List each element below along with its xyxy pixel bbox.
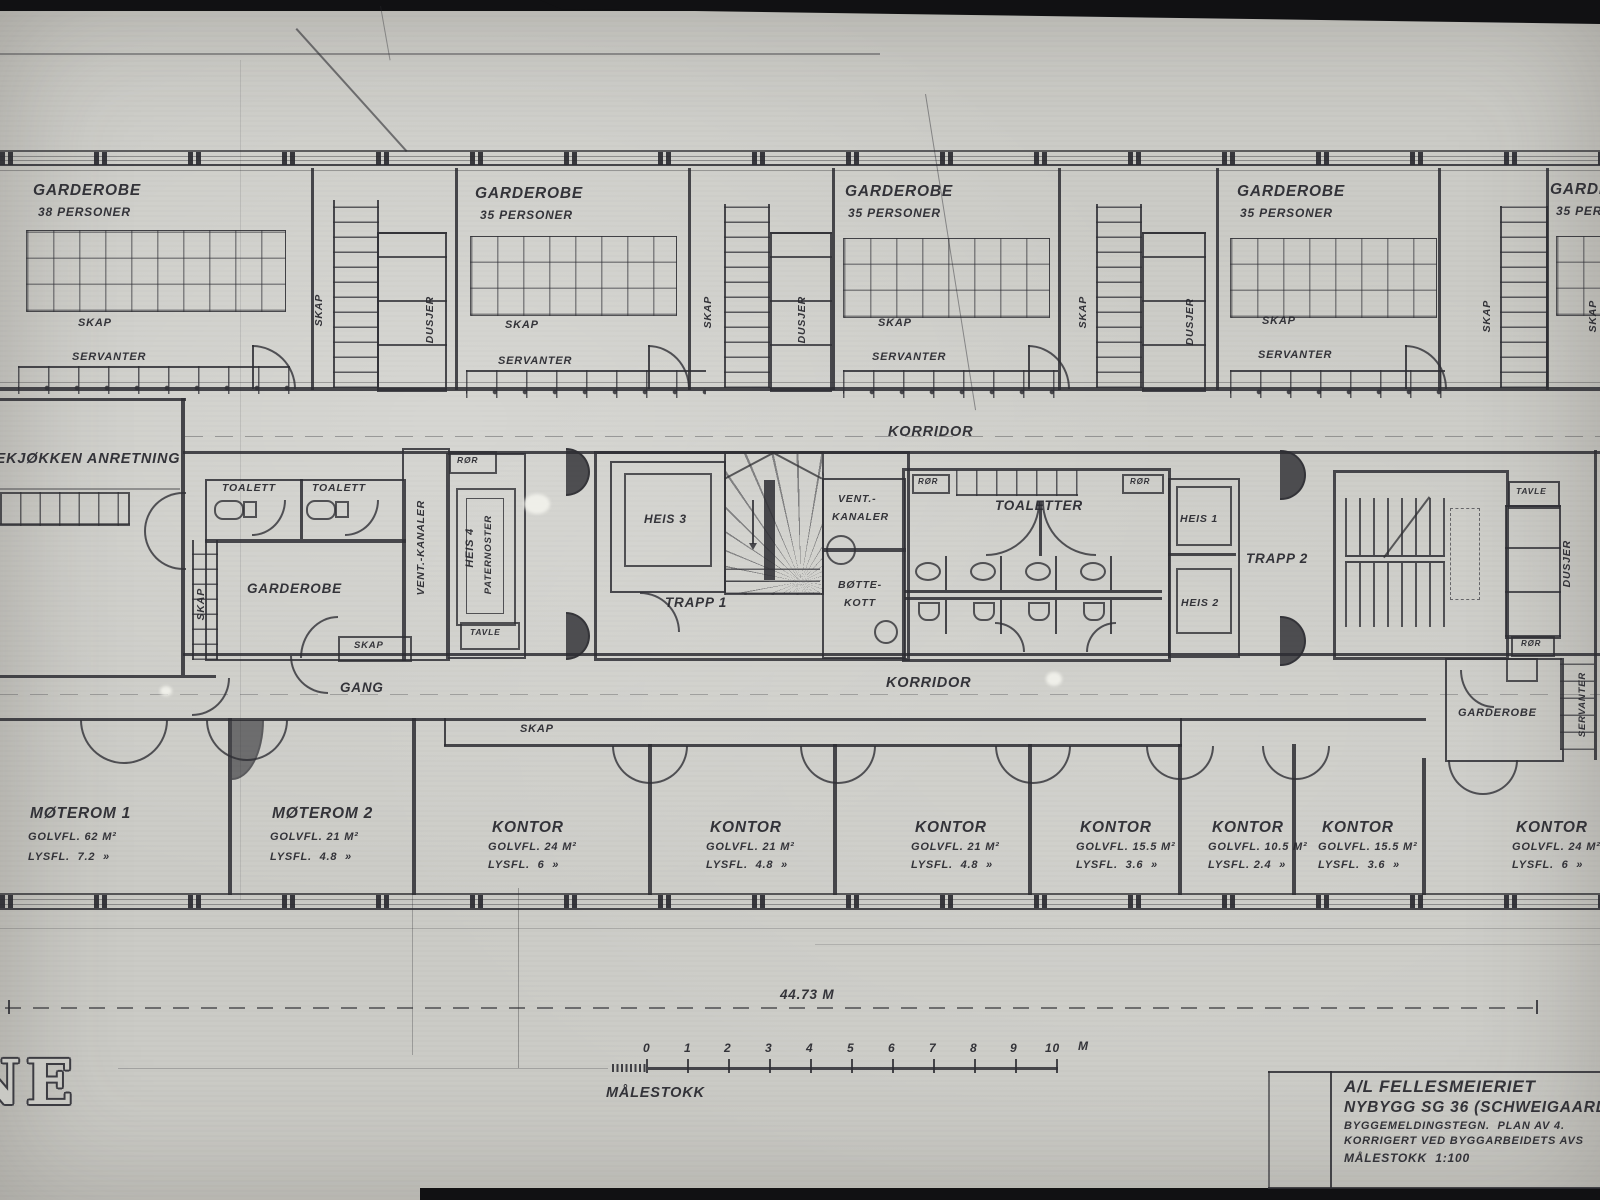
room-light-area: LYSFL. 2.4 »: [1208, 860, 1286, 871]
skap-label: SKAP: [196, 588, 207, 620]
title-block-border-left: [1268, 1071, 1270, 1189]
locker-grid: [1230, 238, 1437, 318]
scan-line: [815, 944, 1600, 945]
room-area: GOLVFL. 10.5 M²: [1208, 842, 1307, 853]
room-capacity: 35 PERSONER: [848, 207, 941, 219]
scale-tick-label: 4: [806, 1042, 813, 1054]
fold-line: [296, 28, 408, 152]
locker-grid: [470, 236, 677, 316]
room-area: GOLVFL. 24 M²: [1512, 842, 1600, 853]
door-leaf-dark: [566, 448, 590, 496]
door-arc: [1028, 345, 1070, 389]
heis-label: HEIS 4: [465, 528, 476, 568]
skap-band-end: [1180, 718, 1182, 746]
room-label: GARDEROBE: [845, 184, 953, 200]
arrow-down-icon: [749, 543, 757, 550]
scale-bar-ticks: [646, 1059, 1062, 1073]
shelf-ladder: [333, 200, 379, 388]
title-block-border-top: [1268, 1071, 1600, 1073]
door-leaf-dark: [1280, 450, 1306, 500]
stair-risers: [1345, 563, 1445, 627]
corner-lettering: NE: [0, 1046, 78, 1119]
tavle-label: TAVLE: [1516, 487, 1547, 496]
vent-label: KANALER: [832, 512, 889, 523]
scale-extension-line: [118, 1068, 608, 1069]
door-arc: [1405, 345, 1447, 389]
wc-fixture: [970, 562, 996, 581]
partition-wall: [688, 168, 691, 390]
scan-line: [0, 928, 1600, 929]
scale-tick-label: 7: [929, 1042, 936, 1054]
title-line: A/L FELLESMEIERIET: [1344, 1078, 1536, 1095]
servanter-label: SERVANTER: [872, 352, 946, 363]
wc-fixture: [1025, 562, 1051, 581]
skap-box: [1506, 658, 1538, 682]
floor-plan-scan: GARDEROBE 38 PERSONER SKAP SERVANTER DUS…: [0, 0, 1600, 1200]
skap-label: SKAP: [1262, 316, 1296, 327]
stall-partition: [1000, 556, 1002, 590]
wc-fixture: [915, 562, 941, 581]
scale-tick-label: 5: [847, 1042, 854, 1054]
room-capacity: 35 PERSONER: [480, 209, 573, 221]
door-arc: [252, 345, 296, 389]
door-arc: [800, 746, 876, 784]
washbasins: [18, 366, 290, 394]
room-label: BØTTE-: [838, 580, 882, 591]
wc-fixture: [973, 602, 995, 621]
room-light-area: LYSFL. 6 »: [1512, 860, 1583, 871]
scale-tick-label: 9: [1010, 1042, 1017, 1054]
door-leaf: [1039, 502, 1042, 556]
room-light-area: LYSFL. 3.6 »: [1076, 860, 1158, 871]
skap-band-end: [444, 718, 446, 746]
room-label: GARDEROBE: [247, 582, 342, 596]
skap-label: SKAP: [520, 724, 554, 735]
scan-spot: [160, 686, 172, 696]
room-area: GOLVFL. 21 M²: [911, 842, 1000, 853]
shelf-ladder: [1096, 204, 1142, 388]
title-block-divider: [1330, 1071, 1332, 1189]
door-arc: [612, 746, 688, 784]
skap-label: SKAP: [78, 318, 112, 329]
room-label: GARDEROBE: [1458, 708, 1537, 719]
room-area: GOLVFL. 21 M²: [270, 832, 359, 843]
room-label: GARDEROBE: [475, 186, 583, 202]
partition-wall: [832, 168, 835, 390]
skap-label: SKAP: [1482, 300, 1493, 332]
room-label: GARDEROBE: [1550, 182, 1600, 198]
stall-partition: [945, 600, 947, 634]
band-guide-line: [0, 170, 1600, 171]
scale-tick-label: 8: [970, 1042, 977, 1054]
stair-landing-dashed: [1450, 508, 1480, 600]
kitchen-counter: [0, 492, 130, 526]
skap-label: SKAP: [703, 296, 714, 328]
scan-edge-top-right: [540, 0, 1600, 24]
korridor-label: KORRIDOR: [888, 425, 973, 440]
room-area: GOLVFL. 15.5 M²: [1076, 842, 1175, 853]
partition-wall: [412, 718, 416, 895]
heis-label: HEIS 3: [644, 513, 687, 525]
shower-stalls: [377, 232, 447, 392]
wall: [0, 398, 186, 401]
scale-tick-label: 1: [684, 1042, 691, 1054]
room-label: KONTOR: [1516, 820, 1588, 836]
title-line: BYGGEMELDINGSTEGN. PLAN AV 4.: [1344, 1121, 1565, 1132]
shower-stalls: [1505, 505, 1561, 639]
shower-stalls: [1142, 232, 1206, 392]
door-arc: [1448, 760, 1518, 795]
dusjer-label: DUSJER: [1185, 298, 1196, 345]
partition-wall: [1058, 168, 1061, 390]
wc-fixture: [214, 500, 244, 520]
stall-partition: [1055, 600, 1057, 634]
wc-fixture: [1083, 602, 1105, 621]
room-light-area: LYSFL. 4.8 »: [911, 860, 993, 871]
skap-label: SKAP: [1078, 296, 1089, 328]
ror-label: RØR: [1130, 478, 1150, 486]
arrow-stem: [752, 500, 754, 544]
servanter-label: SERVANTER: [498, 356, 572, 367]
corridor-wall: [183, 653, 1600, 656]
sink-circle: [874, 620, 898, 644]
ror-label: RØR: [457, 456, 478, 465]
wc-fixture: [1028, 602, 1050, 621]
wc-fixture: [306, 500, 336, 520]
door-leaf-dark: [232, 720, 264, 780]
skap-label: SKAP: [354, 641, 384, 651]
shelf-ladder: [724, 204, 770, 388]
scale-tick-label: 2: [724, 1042, 731, 1054]
stair-risers: [1345, 498, 1445, 555]
partition-wall: [300, 479, 303, 539]
urinal-row: [956, 470, 1078, 496]
door-arc: [648, 345, 690, 389]
servanter-label: SERVANTER: [1258, 350, 1332, 361]
room-label: KONTOR: [915, 820, 987, 836]
door-leaf: [1405, 345, 1407, 389]
room-light-area: LYSFL. 3.6 »: [1318, 860, 1400, 871]
heis-label: PATERNOSTER: [484, 515, 494, 594]
door-arc: [144, 492, 186, 570]
room-area: GOLVFL. 24 M²: [488, 842, 577, 853]
gang-label: GANG: [340, 681, 384, 695]
door-arc: [995, 746, 1071, 784]
korridor-label: KORRIDOR: [886, 676, 971, 691]
trapp-label: TRAPP 2: [1246, 552, 1308, 566]
wc-fixture: [918, 602, 940, 621]
vent-label: VENT.-: [838, 494, 876, 505]
room-area: GOLVFL. 62 M²: [28, 832, 117, 843]
scan-spot: [1046, 672, 1062, 686]
scan-edge-bottom: [420, 1188, 1600, 1200]
corridor-centerline: [185, 436, 1600, 437]
door-leaf-dark: [1280, 616, 1306, 666]
exterior-wall-top-base: [0, 164, 1600, 166]
locker-grid: [26, 230, 286, 312]
stall-wall: [905, 590, 1162, 593]
title-line: MÅLESTOKK 1:100: [1344, 1152, 1470, 1164]
room-label: MØTEROM 2: [272, 806, 373, 822]
skap-band-top: [444, 718, 1182, 721]
room-light-area: LYSFL. 4.8 »: [270, 852, 352, 863]
scale-tick-label: 6: [888, 1042, 895, 1054]
scale-unit-label: M: [1078, 1040, 1089, 1052]
room-label: KONTOR: [710, 820, 782, 836]
vent-kanaler-label: VENT.-KANALER: [416, 500, 427, 595]
scale-tick-label: 10: [1045, 1042, 1060, 1054]
stall-wall: [905, 597, 1162, 600]
room-light-area: LYSFL. 7.2 »: [28, 852, 110, 863]
skap-label: SKAP: [314, 294, 325, 326]
servanter-label: SERVANTER: [72, 352, 146, 363]
crease-line: [412, 895, 413, 1055]
scale-tick-label: 3: [765, 1042, 772, 1054]
room-label: KOTT: [844, 598, 876, 609]
partition-wall: [455, 168, 458, 390]
room-label: TOALETT: [312, 483, 366, 494]
door-leaf: [1028, 345, 1030, 389]
door-arc: [192, 678, 230, 716]
partition-wall: [1216, 168, 1219, 390]
door-arc: [80, 720, 168, 764]
dimension-line: [5, 1007, 1540, 1009]
room-label: TOALETT: [222, 483, 276, 494]
room-label: KONTOR: [492, 820, 564, 836]
locker-grid: [843, 238, 1050, 318]
wall: [0, 675, 216, 678]
room-label: TEKJØKKEN ANRETNING: [0, 452, 180, 467]
room-label: KONTOR: [1322, 820, 1394, 836]
scale-bar-label: MÅLESTOKK: [606, 1086, 705, 1101]
dusjer-label: DUSJER: [425, 296, 436, 343]
stall-partition: [1110, 556, 1112, 590]
wc-fixture: [1080, 562, 1106, 581]
room-label: KONTOR: [1080, 820, 1152, 836]
room-label: GARDEROBE: [33, 183, 141, 199]
crease-line: [518, 888, 519, 1068]
exterior-wall-bottom-columns: [0, 895, 1600, 908]
heis-label: HEIS 2: [1181, 598, 1219, 609]
stair-landing-line: [1345, 555, 1445, 557]
scale-tick-label: 0: [643, 1042, 650, 1054]
line: [0, 488, 180, 490]
room-area: GOLVFL. 21 M²: [706, 842, 795, 853]
partition-wall: [1438, 168, 1441, 390]
heis-label: HEIS 1: [1180, 514, 1218, 525]
room-capacity: 35 PERSONER: [1240, 207, 1333, 219]
partition-wall: [1546, 168, 1549, 390]
skap-label: SKAP: [505, 320, 539, 331]
room-light-area: LYSFL. 6 »: [488, 860, 559, 871]
dusjer-label: DUSJER: [1562, 540, 1573, 587]
washbasins: [843, 370, 1058, 398]
partition-wall: [311, 168, 314, 390]
door-leaf: [648, 345, 650, 389]
room-label: KONTOR: [1212, 820, 1284, 836]
stair-treads: [726, 560, 820, 594]
room-capacity: 35 PERSONER: [1556, 205, 1600, 217]
door-arc: [290, 656, 328, 694]
scale-bar-hatch: [612, 1064, 646, 1072]
ror-label: RØR: [918, 478, 938, 486]
skap-label: SKAP: [1588, 300, 1599, 332]
dimension-tick: [8, 1000, 10, 1014]
room-label: MØTEROM 1: [30, 806, 131, 822]
skap-label: SKAP: [878, 318, 912, 329]
tavle-label: TAVLE: [470, 628, 501, 637]
trapp-label: TRAPP 1: [665, 596, 727, 610]
room-capacity: 38 PERSONER: [38, 206, 131, 218]
corridor-wall: [1180, 718, 1426, 721]
wall: [1168, 553, 1236, 556]
scan-line: [0, 53, 880, 55]
stall-partition: [945, 556, 947, 590]
line: [0, 523, 130, 525]
exterior-wall-right: [1594, 450, 1597, 760]
title-line: NYBYGG SG 36 (SCHWEIGAARDS GT.: [1344, 1100, 1600, 1116]
dimension-text: 44.73 M: [780, 988, 834, 1002]
room-light-area: LYSFL. 4.8 »: [706, 860, 788, 871]
partition-wall: [1422, 758, 1426, 895]
title-block-border-bottom: [1268, 1187, 1600, 1189]
dimension-tick: [1536, 1000, 1538, 1014]
ror-label: RØR: [1521, 640, 1541, 648]
servanter-label: SERVANTER: [1578, 672, 1588, 737]
door-leaf: [252, 345, 254, 389]
scan-spot: [524, 494, 550, 514]
door-arc: [1146, 746, 1214, 780]
exterior-wall-bottom-base: [0, 908, 1600, 910]
shelf-ladder: [1500, 206, 1548, 388]
title-line: KORRIGERT VED BYGGARBEIDETS AVS: [1344, 1136, 1584, 1147]
dusjer-label: DUSJER: [797, 296, 808, 343]
corridor-centerline: [0, 694, 1600, 695]
room-area: GOLVFL. 15.5 M²: [1318, 842, 1417, 853]
stall-partition: [1055, 556, 1057, 590]
room-label: GARDEROBE: [1237, 184, 1345, 200]
